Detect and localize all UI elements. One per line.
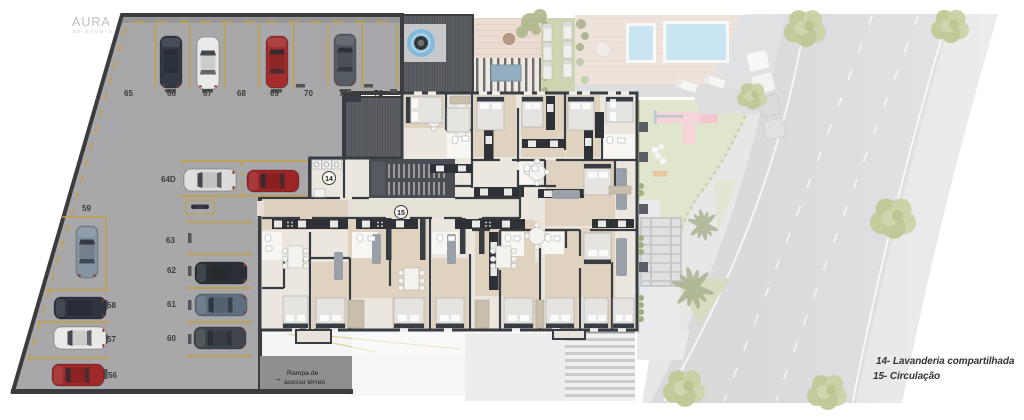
svg-text:AURA: AURA [72, 15, 111, 29]
svg-text:70: 70 [304, 89, 313, 98]
svg-text:Rampa de: Rampa de [287, 370, 319, 377]
svg-text:57: 57 [107, 335, 116, 344]
svg-text:63: 63 [166, 236, 175, 245]
svg-text:14: 14 [325, 176, 333, 183]
svg-text:62: 62 [167, 266, 176, 275]
svg-text:61: 61 [167, 300, 176, 309]
svg-text:15- Circulação: 15- Circulação [873, 371, 940, 382]
svg-text:58: 58 [107, 301, 116, 310]
svg-text:66: 66 [167, 89, 176, 98]
svg-text:15: 15 [397, 210, 405, 217]
svg-text:65: 65 [124, 89, 133, 98]
svg-text:67: 67 [203, 89, 212, 98]
svg-text:64D: 64D [161, 175, 176, 184]
svg-text:14- Lavanderia compartilhada: 14- Lavanderia compartilhada [876, 356, 1015, 367]
svg-text:56: 56 [108, 371, 117, 380]
svg-text:acesso térreo: acesso térreo [284, 379, 325, 386]
svg-text:→: → [273, 373, 282, 383]
svg-text:72: 72 [374, 89, 383, 98]
svg-text:59: 59 [82, 204, 91, 213]
svg-text:60: 60 [167, 334, 176, 343]
svg-text:68: 68 [237, 89, 246, 98]
svg-text:3D STUDIO: 3D STUDIO [73, 29, 114, 34]
svg-text:69: 69 [270, 89, 279, 98]
